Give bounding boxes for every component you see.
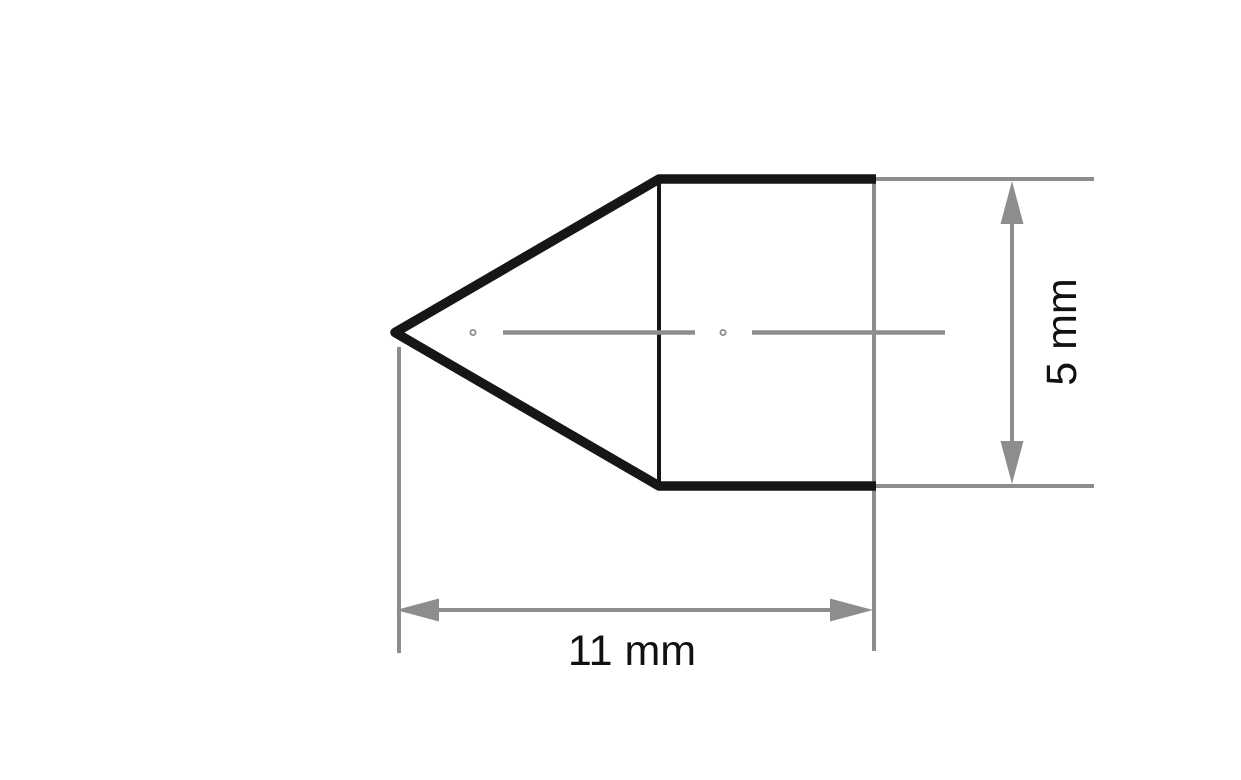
length-arrow-right-icon — [830, 599, 873, 622]
centerline-dot — [720, 330, 725, 335]
dimension-arrowheads — [396, 181, 1024, 622]
dimension-linework — [399, 177, 1094, 653]
diameter-arrow-up-icon — [1001, 181, 1024, 224]
centerline-dot — [470, 330, 475, 335]
center-line — [470, 330, 945, 335]
drawing-page: 11 mm 5 mm — [0, 0, 1241, 780]
length-arrow-left-icon — [396, 599, 439, 622]
diameter-arrow-down-icon — [1001, 441, 1024, 484]
engineering-drawing: 11 mm 5 mm — [0, 0, 1241, 780]
length-dimension-label: 11 mm — [568, 627, 696, 675]
diameter-dimension-label: 5 mm — [1038, 278, 1086, 386]
